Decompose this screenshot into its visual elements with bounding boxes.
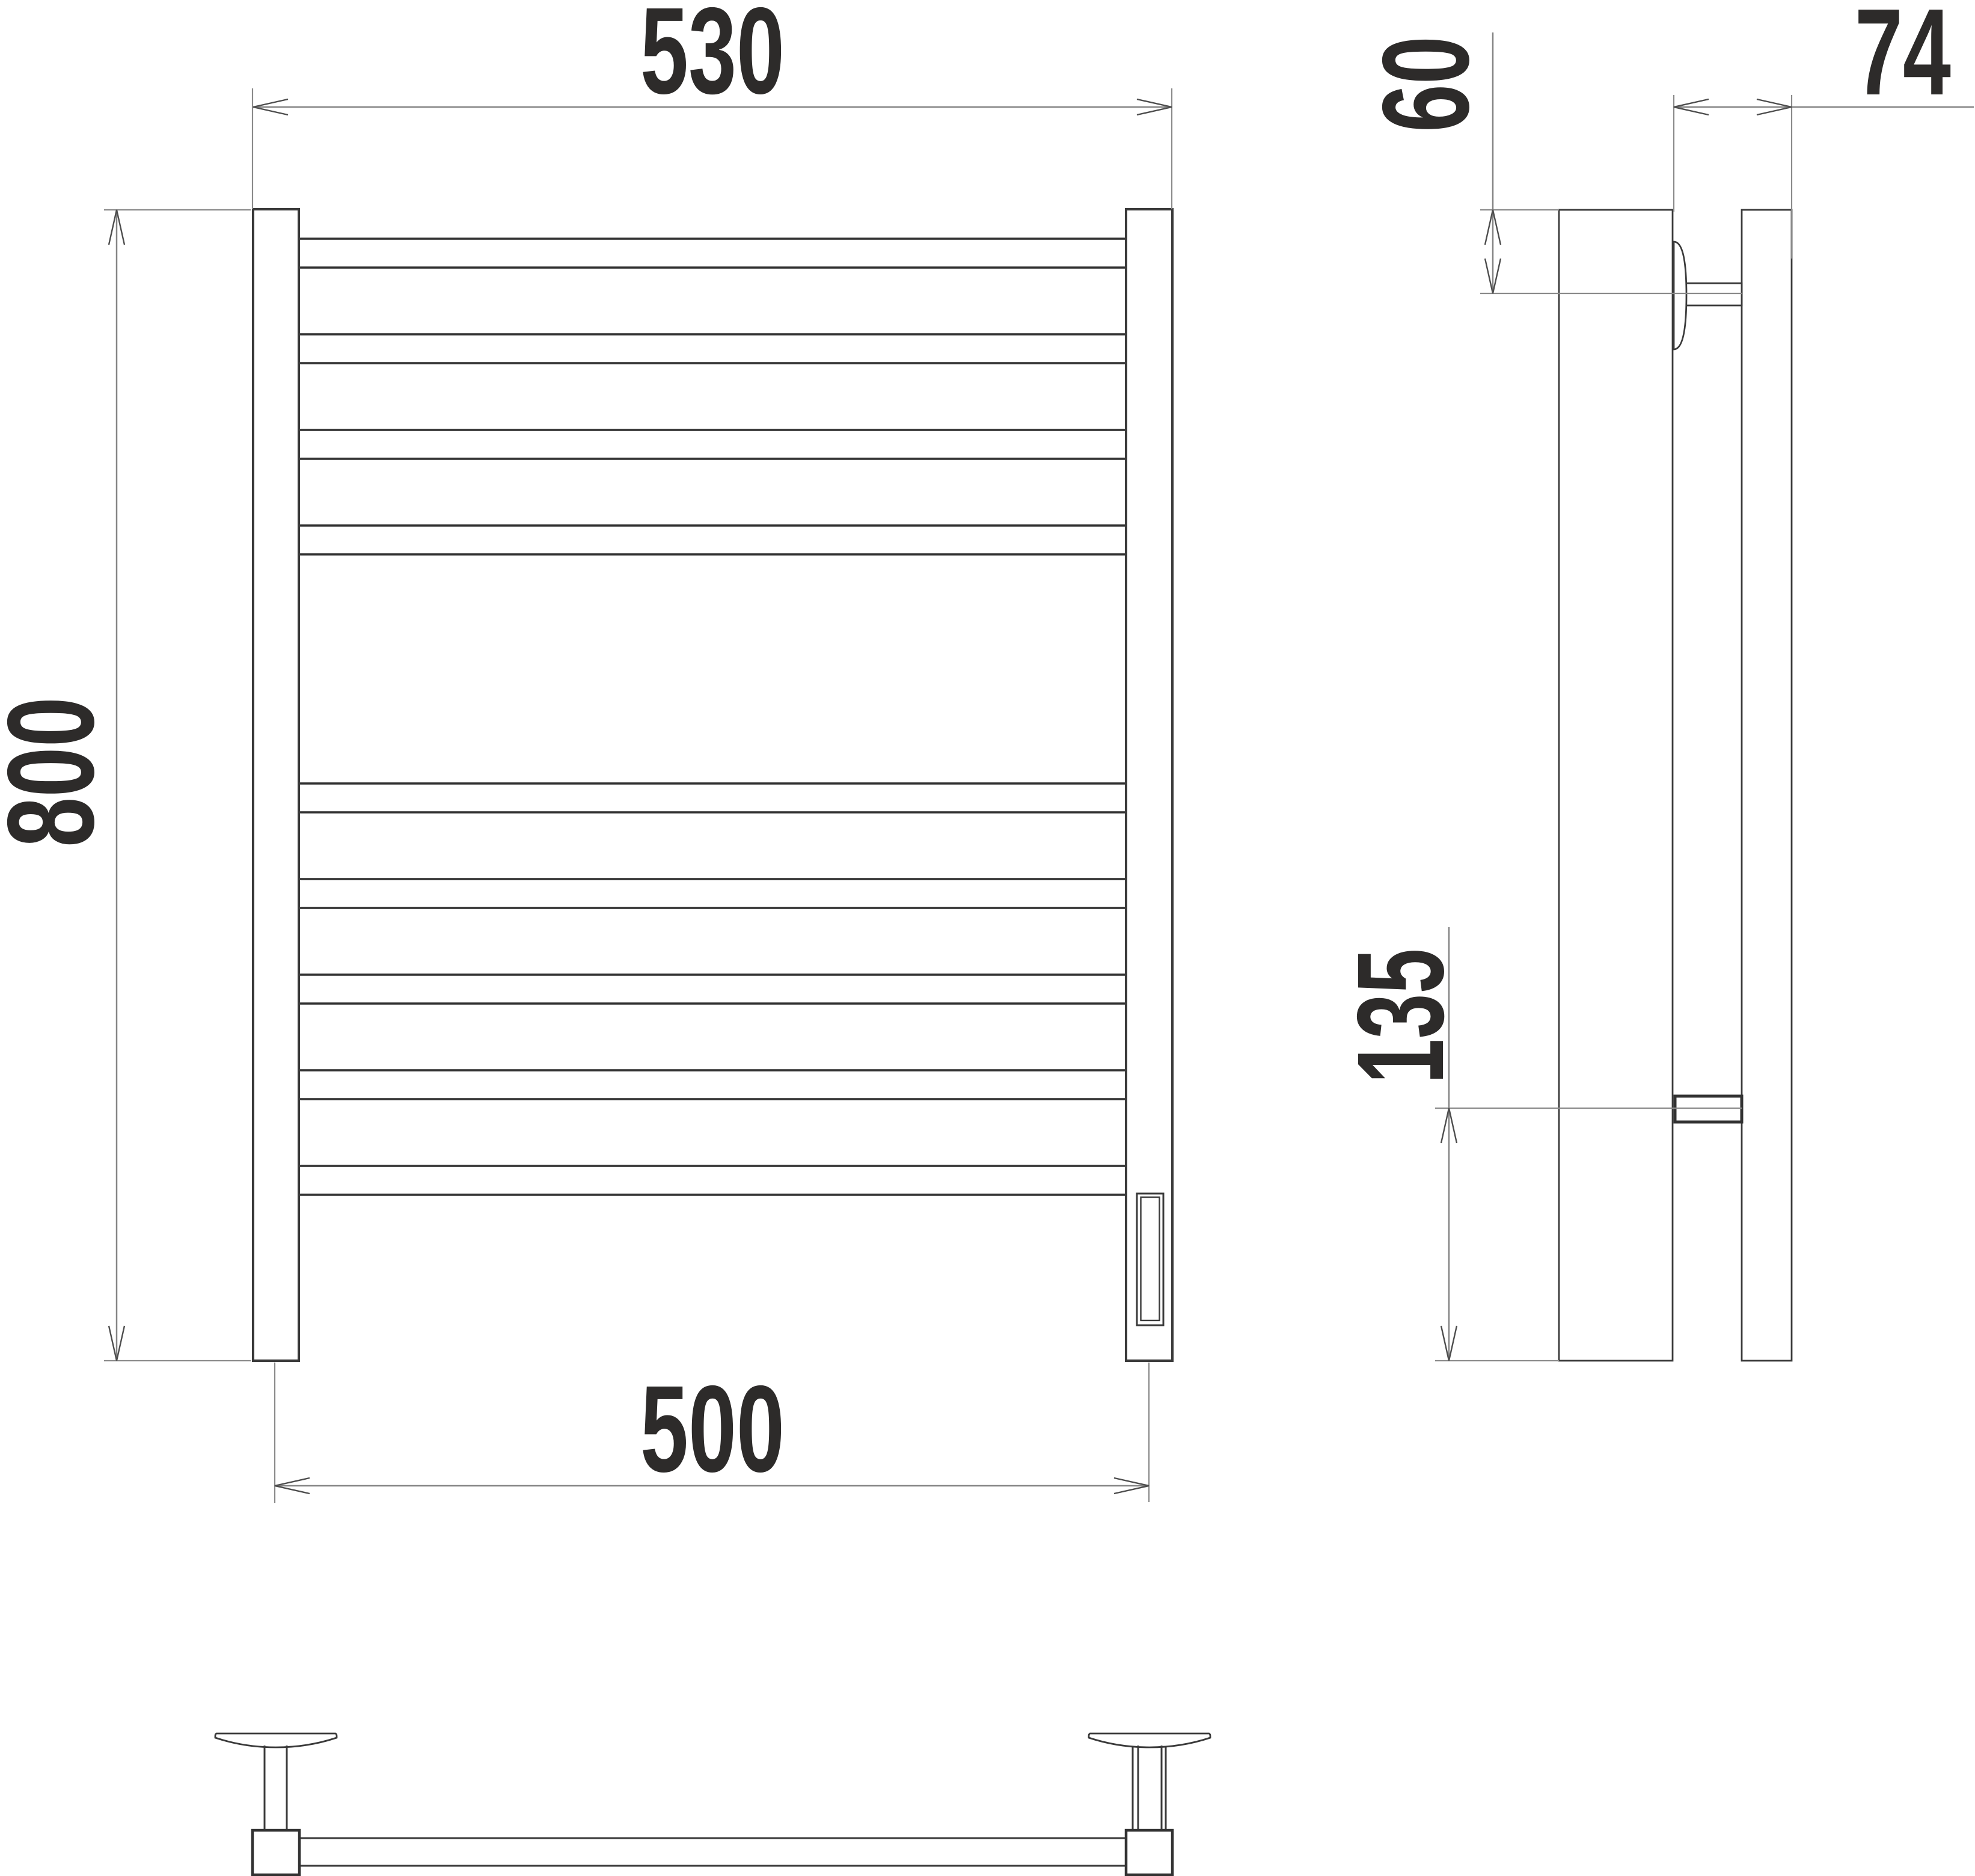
rung (299, 975, 1126, 1004)
dimension-800: 800 (0, 210, 251, 1361)
top-bracket-flange (1674, 242, 1686, 349)
bottom-bracket-stem (1675, 1096, 1742, 1122)
dimension-135: 135 (1332, 927, 1469, 1361)
dimension-label-60: 60 (1357, 36, 1495, 132)
left-flange (215, 1733, 337, 1747)
dimension-label-500: 500 (640, 1360, 785, 1498)
side-view (1435, 210, 1792, 1361)
dimension-label-135: 135 (1332, 949, 1469, 1084)
rung (299, 239, 1126, 268)
wall-strip (1559, 210, 1673, 1361)
right-end-block (1126, 1830, 1172, 1875)
front-view (253, 209, 1172, 1361)
dimension-74: 74 (1674, 0, 1974, 259)
rung (299, 526, 1126, 554)
rung (299, 334, 1126, 363)
control-box-inner (1141, 1197, 1160, 1320)
rail-profile (1742, 210, 1792, 1361)
dimension-60: 60 (1357, 32, 1501, 293)
right-post (1126, 209, 1172, 1361)
rung (299, 879, 1126, 908)
rung (299, 1070, 1126, 1099)
technical-drawing: 530 800 500 7 (0, 0, 1975, 1876)
right-flange (1089, 1733, 1210, 1747)
dimension-label-530: 530 (640, 0, 785, 120)
bottom-view (215, 1733, 1210, 1875)
dimension-500: 500 (275, 1360, 1149, 1503)
rung (299, 1166, 1126, 1195)
drawing-page: 530 800 500 7 (0, 0, 1975, 1876)
rung (299, 783, 1126, 812)
dimension-530: 530 (253, 0, 1172, 209)
rung (299, 430, 1126, 459)
left-end-block (253, 1830, 299, 1875)
left-post (253, 209, 299, 1361)
dimension-label-74: 74 (1855, 0, 1951, 121)
dimension-label-800: 800 (0, 697, 120, 847)
top-bracket-stem (1683, 283, 1742, 305)
